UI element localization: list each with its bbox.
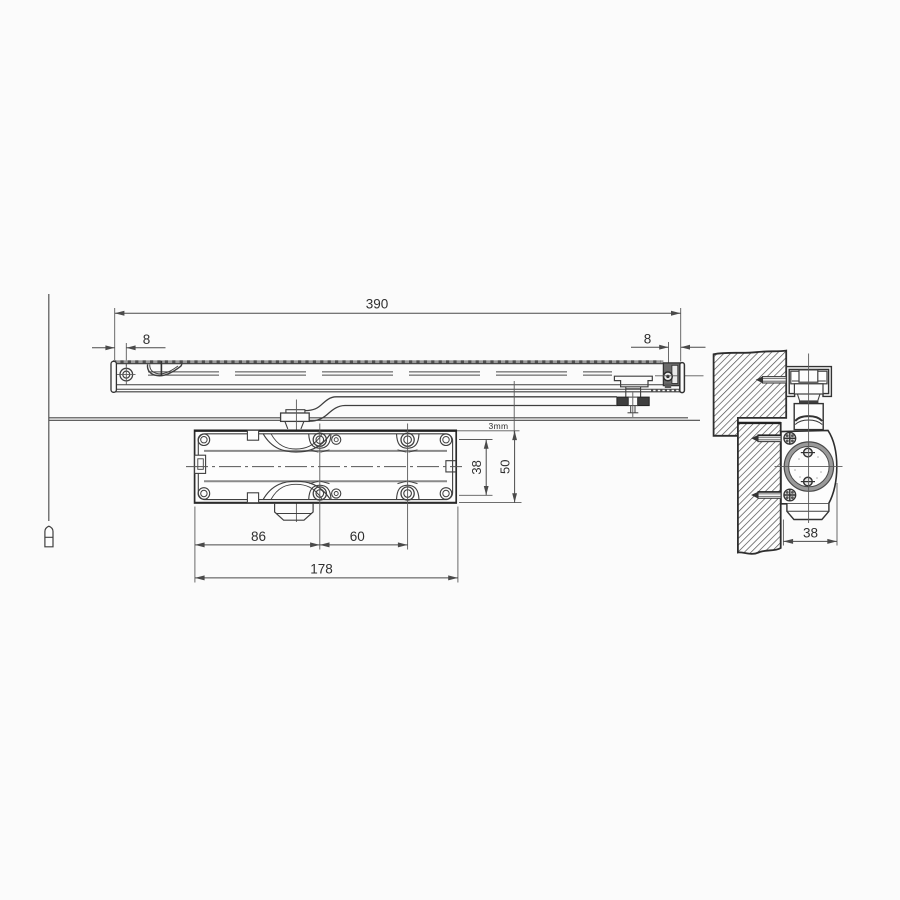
svg-text:390: 390 <box>366 297 389 312</box>
svg-text:8: 8 <box>143 332 151 347</box>
svg-text:3mm: 3mm <box>488 421 508 431</box>
svg-text:178: 178 <box>310 562 333 577</box>
svg-text:8: 8 <box>644 332 652 347</box>
svg-text:38: 38 <box>803 525 818 540</box>
svg-text:60: 60 <box>350 529 365 544</box>
svg-text:86: 86 <box>251 529 266 544</box>
svg-text:50: 50 <box>497 459 512 473</box>
svg-text:38: 38 <box>469 460 484 474</box>
